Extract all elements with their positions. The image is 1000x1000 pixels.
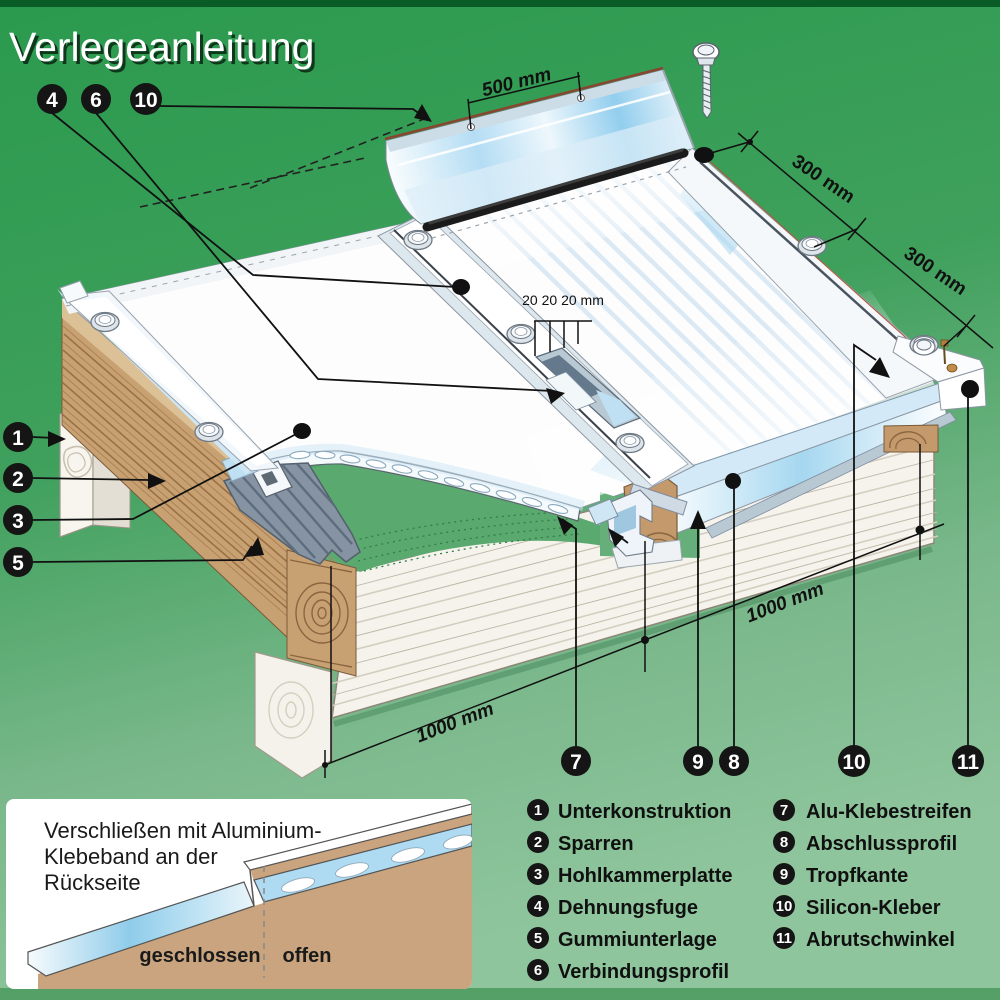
svg-text:8: 8 [780, 834, 788, 851]
svg-text:Verbindungsprofil: Verbindungsprofil [558, 961, 729, 983]
svg-text:8: 8 [728, 751, 740, 774]
svg-text:10: 10 [842, 751, 865, 774]
svg-text:Tropfkante: Tropfkante [806, 865, 908, 887]
svg-text:7: 7 [780, 802, 788, 819]
svg-text:Sparren: Sparren [558, 833, 634, 855]
svg-text:Klebeband an der: Klebeband an der [44, 844, 218, 869]
svg-text:11: 11 [957, 751, 980, 774]
svg-text:9: 9 [780, 866, 788, 883]
svg-text:1: 1 [12, 427, 24, 450]
svg-text:2: 2 [534, 834, 542, 851]
svg-text:6: 6 [90, 89, 102, 112]
svg-text:4: 4 [46, 89, 58, 112]
svg-text:9: 9 [692, 751, 704, 774]
svg-text:Verschließen mit Aluminium-: Verschließen mit Aluminium- [44, 818, 322, 843]
svg-text:geschlossen: geschlossen [139, 945, 260, 967]
svg-text:7: 7 [570, 751, 582, 774]
svg-text:Hohlkammerplatte: Hohlkammerplatte [558, 865, 733, 887]
svg-text:10: 10 [134, 89, 157, 112]
svg-text:Dehnungsfuge: Dehnungsfuge [558, 897, 698, 919]
svg-text:Abschlussprofil: Abschlussprofil [806, 833, 957, 855]
svg-text:11: 11 [776, 930, 792, 947]
svg-text:Verlegeanleitung: Verlegeanleitung [9, 24, 314, 70]
svg-text:20 20 20 mm: 20 20 20 mm [522, 292, 604, 308]
svg-text:3: 3 [534, 866, 542, 883]
svg-text:5: 5 [534, 930, 542, 947]
svg-text:Alu-Klebestreifen: Alu-Klebestreifen [806, 801, 972, 823]
svg-text:Silicon-Kleber: Silicon-Kleber [806, 897, 941, 919]
svg-text:Rückseite: Rückseite [44, 870, 141, 895]
svg-text:2: 2 [12, 468, 24, 491]
svg-text:1: 1 [534, 802, 542, 819]
svg-text:4: 4 [534, 898, 543, 915]
svg-text:6: 6 [534, 962, 542, 979]
svg-text:Unterkonstruktion: Unterkonstruktion [558, 801, 731, 823]
svg-text:10: 10 [776, 898, 793, 915]
svg-text:Abrutschwinkel: Abrutschwinkel [806, 929, 955, 951]
svg-text:offen: offen [283, 945, 332, 967]
svg-text:5: 5 [12, 552, 24, 575]
svg-text:Gummiunterlage: Gummiunterlage [558, 929, 717, 951]
svg-text:3: 3 [12, 510, 24, 533]
